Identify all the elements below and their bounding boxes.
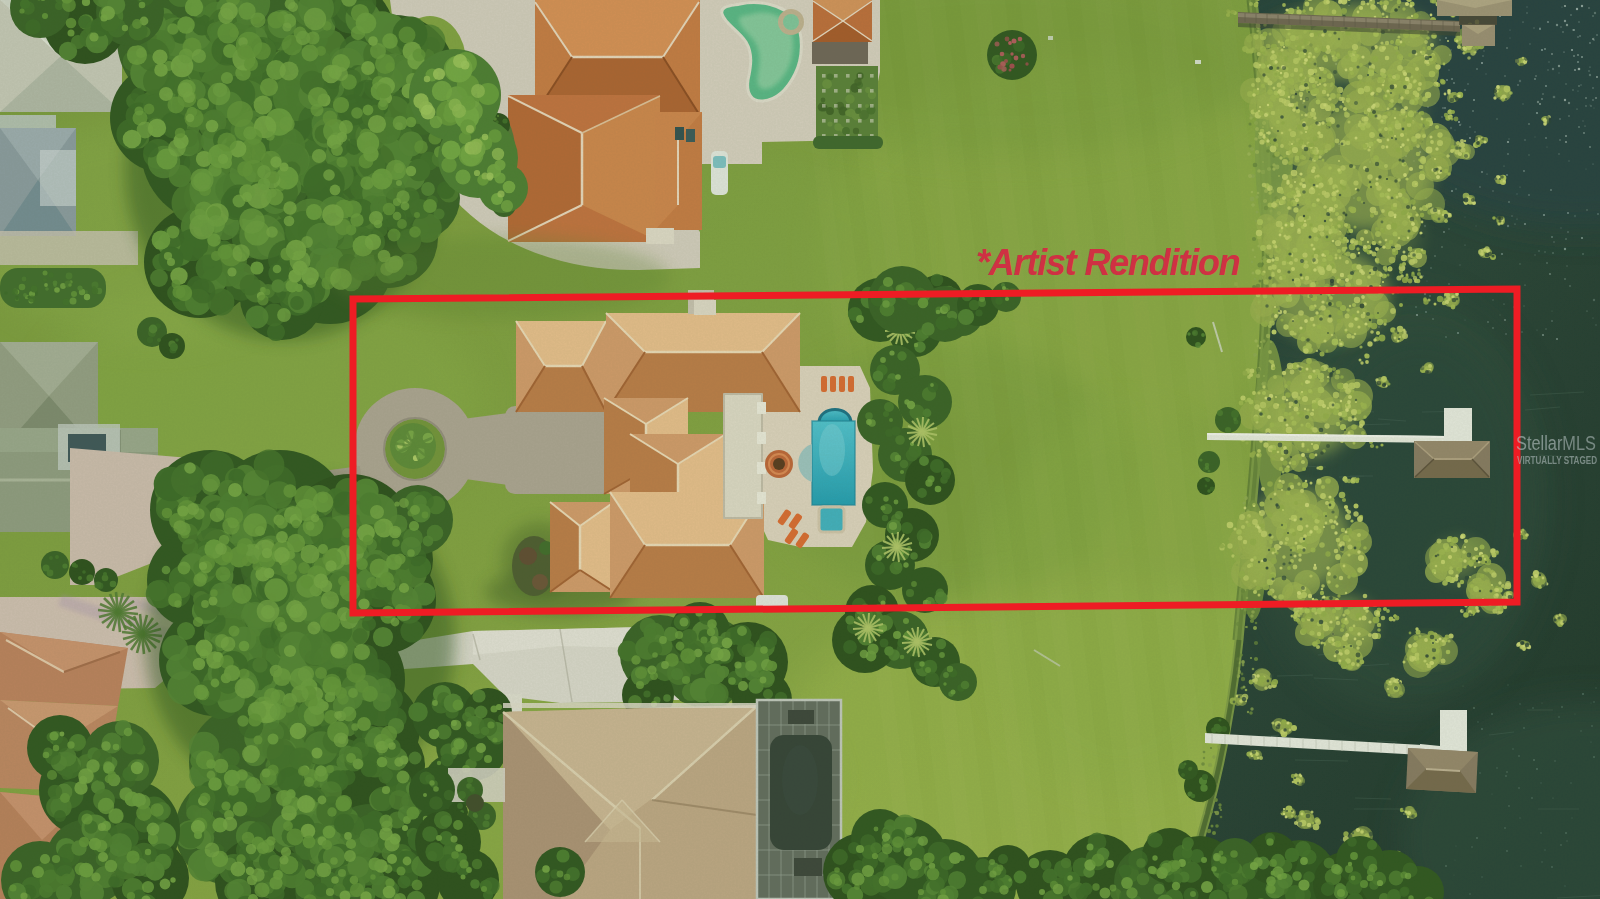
svg-text:StellarMLS: StellarMLS xyxy=(1516,432,1596,454)
svg-text:VIRTUALLY STAGED: VIRTUALLY STAGED xyxy=(1517,455,1597,466)
svg-text:*Artist Rendition: *Artist Rendition xyxy=(976,242,1240,283)
